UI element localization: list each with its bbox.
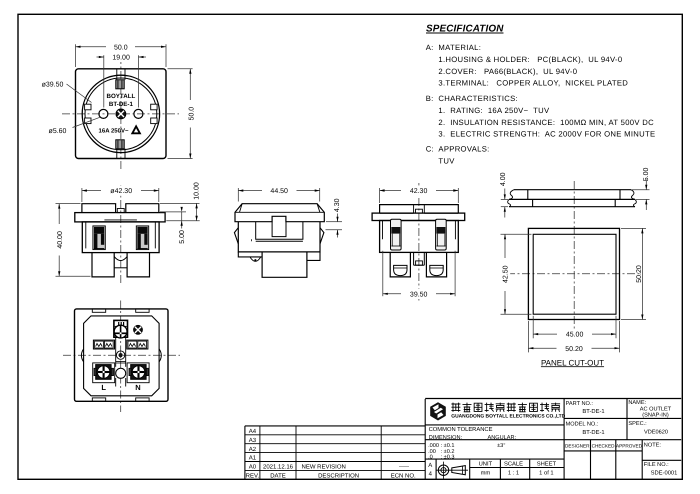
svg-text:1. RATING: 16A 250V~ TUV: 1. RATING: 16A 250V~ TUV bbox=[438, 106, 550, 115]
svg-text:4: 4 bbox=[429, 470, 433, 477]
svg-text:SCALE: SCALE bbox=[504, 461, 523, 468]
svg-text:MODEL NO.:: MODEL NO.: bbox=[566, 422, 599, 428]
svg-text:DESIGNER: DESIGNER bbox=[565, 443, 590, 448]
svg-text:FILE NO.:: FILE NO.: bbox=[644, 462, 669, 468]
svg-text:4.30: 4.30 bbox=[334, 198, 341, 212]
svg-text:SPECIFICATION: SPECIFICATION bbox=[426, 24, 504, 35]
svg-text:DIMENSION:: DIMENSION: bbox=[429, 435, 463, 441]
svg-text:50.20: 50.20 bbox=[636, 265, 643, 283]
svg-text:BT-DE-1: BT-DE-1 bbox=[582, 409, 604, 415]
svg-text:50.20: 50.20 bbox=[565, 346, 583, 353]
svg-text:19.00: 19.00 bbox=[112, 55, 130, 62]
svg-text:ø42.30: ø42.30 bbox=[110, 188, 132, 195]
svg-text:5.00: 5.00 bbox=[179, 230, 186, 244]
svg-text:2021.12.16: 2021.12.16 bbox=[263, 464, 294, 471]
svg-text:5.00: 5.00 bbox=[643, 167, 650, 181]
svg-text:L: L bbox=[101, 383, 106, 392]
svg-text:-----: ----- bbox=[399, 464, 409, 470]
svg-text:BT-DE-1: BT-DE-1 bbox=[109, 101, 134, 108]
svg-text:42.50: 42.50 bbox=[503, 265, 510, 283]
svg-text:A3: A3 bbox=[249, 437, 257, 444]
svg-text:DATE: DATE bbox=[270, 472, 286, 479]
svg-text:mm: mm bbox=[481, 470, 491, 476]
svg-text:ø5.60: ø5.60 bbox=[49, 128, 67, 135]
svg-text:SDE-0001: SDE-0001 bbox=[651, 470, 678, 477]
svg-text:A4: A4 bbox=[249, 428, 257, 435]
svg-text:50.0: 50.0 bbox=[114, 44, 128, 51]
svg-text:4.00: 4.00 bbox=[500, 172, 507, 186]
svg-text:CHECKED: CHECKED bbox=[592, 443, 616, 448]
svg-text:BT-DE-1: BT-DE-1 bbox=[582, 430, 604, 436]
svg-text:1 : 1: 1 : 1 bbox=[508, 470, 519, 476]
svg-text:NAME:: NAME: bbox=[628, 400, 646, 406]
svg-text:A1: A1 bbox=[249, 455, 257, 462]
svg-text:44.50: 44.50 bbox=[270, 188, 288, 195]
svg-text:APPROVED: APPROVED bbox=[616, 443, 643, 448]
svg-text:DESCRIPTION: DESCRIPTION bbox=[318, 472, 359, 479]
svg-text:16A 250V~: 16A 250V~ bbox=[99, 127, 129, 134]
svg-text:SHEET: SHEET bbox=[537, 461, 557, 468]
svg-text:BOYTALL: BOYTALL bbox=[107, 93, 136, 100]
svg-text:B: CHARACTERISTICS:: B: CHARACTERISTICS: bbox=[426, 94, 518, 103]
svg-text:2.COVER: PA66(BLACK), UL 94: 2.COVER: PA66(BLACK), UL 94V-0 bbox=[438, 67, 577, 76]
svg-text:ø39.50: ø39.50 bbox=[42, 81, 64, 88]
svg-text:1.HOUSING & HOLDER: PC(BLACK: 1.HOUSING & HOLDER: PC(BLACK), UL 94V-0 bbox=[438, 55, 622, 64]
svg-text:C: APPROVALS:: C: APPROVALS: bbox=[426, 145, 490, 154]
svg-text:GUANGDONG BOYTALL ELECTRONICS: GUANGDONG BOYTALL ELECTRONICS CO.,LTD bbox=[451, 414, 565, 420]
svg-text:40.00: 40.00 bbox=[57, 231, 64, 249]
svg-text:N: N bbox=[135, 383, 140, 392]
svg-text:PART NO.:: PART NO.: bbox=[566, 401, 594, 407]
svg-text:NOTE:: NOTE: bbox=[644, 442, 662, 448]
svg-text:3. ELECTRIC STRENGTH: AC 200: 3. ELECTRIC STRENGTH: AC 2000V FOR ONE M… bbox=[438, 130, 655, 139]
svg-text:TUV: TUV bbox=[438, 157, 455, 166]
svg-text:NEW REVISION: NEW REVISION bbox=[302, 464, 346, 471]
svg-text:REV.: REV. bbox=[246, 472, 260, 479]
svg-text:UNIT: UNIT bbox=[479, 462, 493, 468]
svg-text:SPEC.:: SPEC.: bbox=[628, 421, 647, 427]
svg-text:VDE0620: VDE0620 bbox=[644, 430, 668, 436]
svg-text:1 of 1: 1 of 1 bbox=[539, 469, 554, 476]
svg-text:.0 : ±0.3: .0 : ±0.3 bbox=[428, 455, 454, 461]
svg-text:PANEL CUT-OUT: PANEL CUT-OUT bbox=[541, 358, 604, 367]
svg-text:COMMON TOLERANCE: COMMON TOLERANCE bbox=[429, 426, 493, 433]
svg-text:A: A bbox=[428, 462, 432, 469]
svg-text:(SNAP-IN): (SNAP-IN) bbox=[642, 412, 669, 419]
svg-text:42.30: 42.30 bbox=[410, 188, 428, 195]
svg-text:45.00: 45.00 bbox=[566, 332, 584, 339]
svg-text:39.50: 39.50 bbox=[410, 291, 428, 298]
svg-text:A: MATERIAL:: A: MATERIAL: bbox=[426, 43, 481, 52]
svg-text:ANGULAR:: ANGULAR: bbox=[488, 435, 517, 441]
svg-text:10.00: 10.00 bbox=[193, 182, 200, 200]
svg-text:3.TERMINAL: COPPER ALLOY, N: 3.TERMINAL: COPPER ALLOY, NICKEL PLATED bbox=[438, 79, 628, 88]
svg-text:50.0: 50.0 bbox=[189, 107, 196, 121]
svg-text:±3°: ±3° bbox=[497, 443, 505, 449]
svg-text:ECN NO.: ECN NO. bbox=[391, 472, 416, 479]
svg-text:A2: A2 bbox=[249, 446, 257, 453]
svg-text:2. INSULATION RESISTANCE: 10: 2. INSULATION RESISTANCE: 100MΩ MIN, AT … bbox=[438, 118, 654, 127]
svg-text:A0: A0 bbox=[249, 464, 257, 471]
